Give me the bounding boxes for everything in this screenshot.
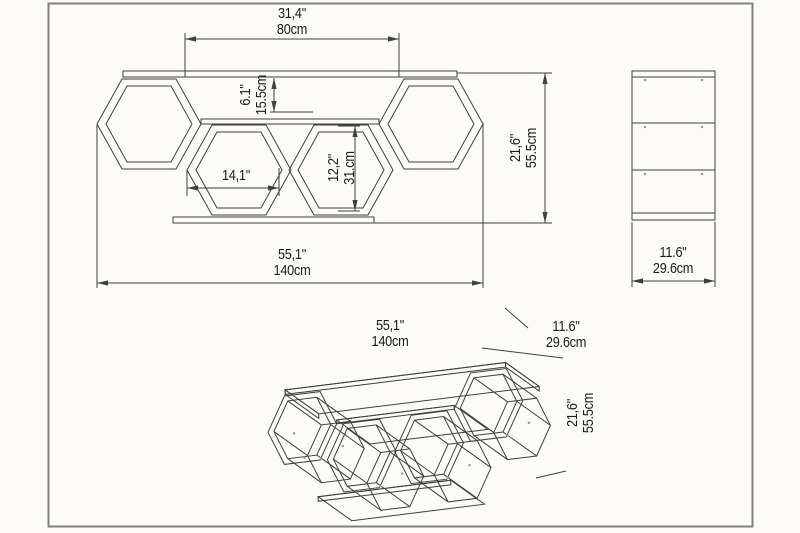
dim-inches: 6.1"	[238, 75, 254, 115]
page-frame-border	[49, 4, 753, 527]
blueprint-page: 31,4" 80cm 6.1" 15.5cm 14,1" 12,2" 31.cm…	[0, 0, 800, 533]
dim-cm: 140cm	[371, 334, 408, 350]
dim-inches: 14,1"	[222, 168, 250, 184]
dim-inches: 55,1"	[371, 318, 408, 334]
dim-inches: 11.6"	[653, 245, 693, 261]
front-top-width-label: 31,4" 80cm	[277, 6, 307, 38]
dim-cm: 80cm	[277, 22, 307, 38]
iso-width-label: 55,1" 140cm	[371, 318, 408, 350]
iso-depth-label: 11.6" 29.6cm	[546, 319, 586, 351]
dim-cm: 55.5cm	[524, 128, 540, 168]
dim-cm: 15.5cm	[254, 75, 270, 115]
front-width-label: 55,1" 140cm	[273, 247, 310, 279]
dim-inches: 55,1"	[273, 247, 310, 263]
front-shelf-gap-label: 6.1" 15.5cm	[238, 75, 270, 115]
iso-height-label: 21,6" 55.5cm	[565, 393, 597, 433]
side-view-drawing	[632, 71, 715, 220]
side-depth-label: 11.6" 29.6cm	[653, 245, 693, 277]
isometric-view-drawing	[268, 363, 550, 521]
dim-cm: 140cm	[273, 263, 310, 279]
front-cell-height-label: 12,2" 31.cm	[326, 151, 358, 184]
dim-inches: 21,6"	[508, 128, 524, 168]
dim-inches: 31,4"	[277, 6, 307, 22]
dim-cm: 31.cm	[342, 151, 358, 184]
dim-cm: 29.6cm	[546, 335, 586, 351]
dim-inches: 12,2"	[326, 151, 342, 184]
dim-inches: 21,6"	[565, 393, 581, 433]
dim-inches: 11.6"	[546, 319, 586, 335]
front-cell-width-label: 14,1"	[222, 168, 250, 184]
front-height-label: 21,6" 55.5cm	[508, 128, 540, 168]
dim-cm: 55.5cm	[581, 393, 597, 433]
front-view-drawing	[97, 71, 483, 223]
dim-cm: 29.6cm	[653, 261, 693, 277]
